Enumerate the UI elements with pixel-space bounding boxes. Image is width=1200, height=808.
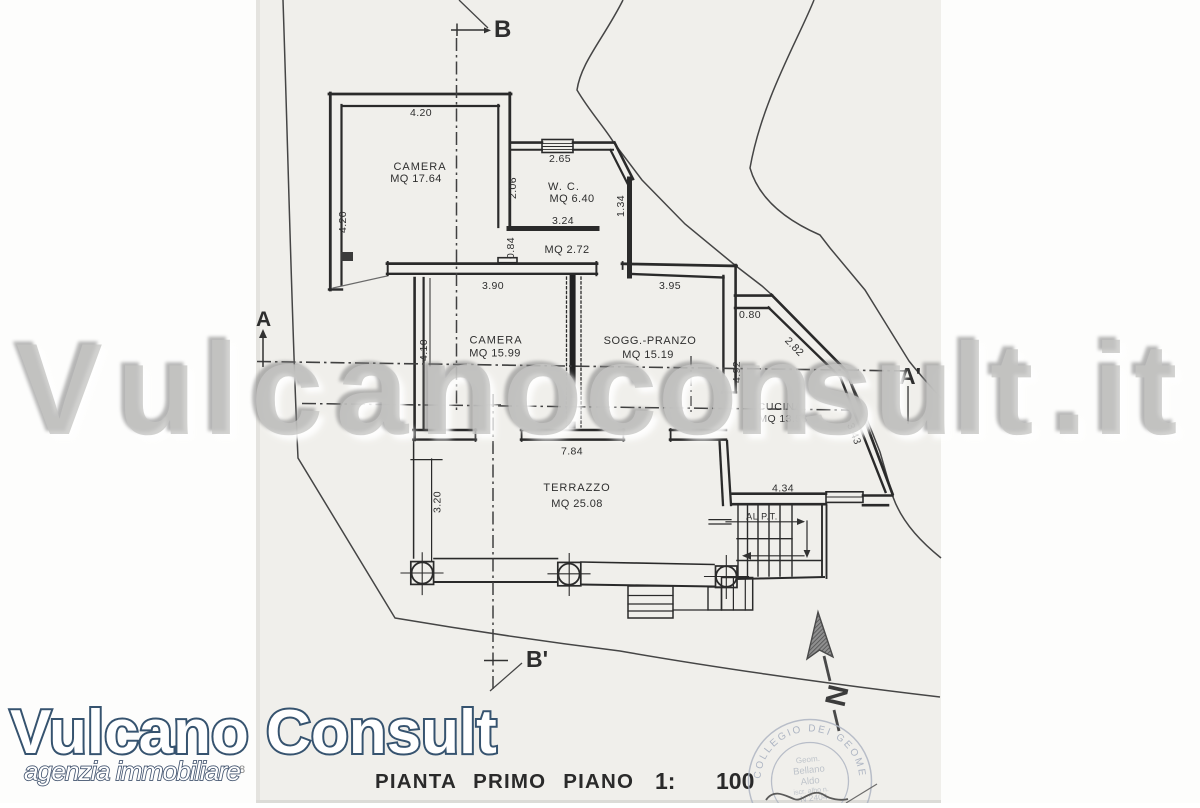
svg-text:3.90: 3.90 (482, 280, 504, 292)
svg-text:PIANTA PRIMO PIANO: PIANTA PRIMO PIANO (375, 770, 634, 793)
svg-text:MQ 6.40: MQ 6.40 (550, 193, 595, 205)
svg-text:4.20: 4.20 (410, 107, 432, 119)
svg-text:MQ 2.72: MQ 2.72 (545, 244, 590, 256)
svg-text:1.34: 1.34 (615, 195, 627, 217)
svg-text:agenzia immobiliare: agenzia immobiliare (24, 756, 240, 786)
svg-text:Aldo: Aldo (800, 775, 820, 788)
svg-text:3.95: 3.95 (659, 280, 681, 292)
svg-text:Vulcanoconsult.it: Vulcanoconsult.it (16, 316, 1177, 462)
svg-text:3.20: 3.20 (432, 491, 444, 513)
svg-text:W. C.: W. C. (548, 181, 580, 193)
svg-text:AL P.T.: AL P.T. (746, 512, 778, 522)
svg-text:MQ 25.08: MQ 25.08 (551, 498, 603, 510)
svg-text:4.20: 4.20 (337, 211, 349, 233)
svg-text:2.65: 2.65 (549, 153, 571, 165)
svg-text:B': B' (526, 646, 548, 672)
svg-text:4.34: 4.34 (772, 483, 794, 495)
svg-text:3.24: 3.24 (552, 215, 574, 227)
svg-text:0.84: 0.84 (505, 237, 517, 259)
svg-text:MQ 17.64: MQ 17.64 (390, 173, 442, 185)
svg-text:TERRAZZO: TERRAZZO (543, 482, 610, 494)
svg-text:2.06: 2.06 (507, 177, 519, 199)
svg-text:CAMERA: CAMERA (393, 161, 446, 173)
svg-text:B: B (494, 16, 511, 43)
svg-text:1:: 1: (655, 768, 675, 794)
